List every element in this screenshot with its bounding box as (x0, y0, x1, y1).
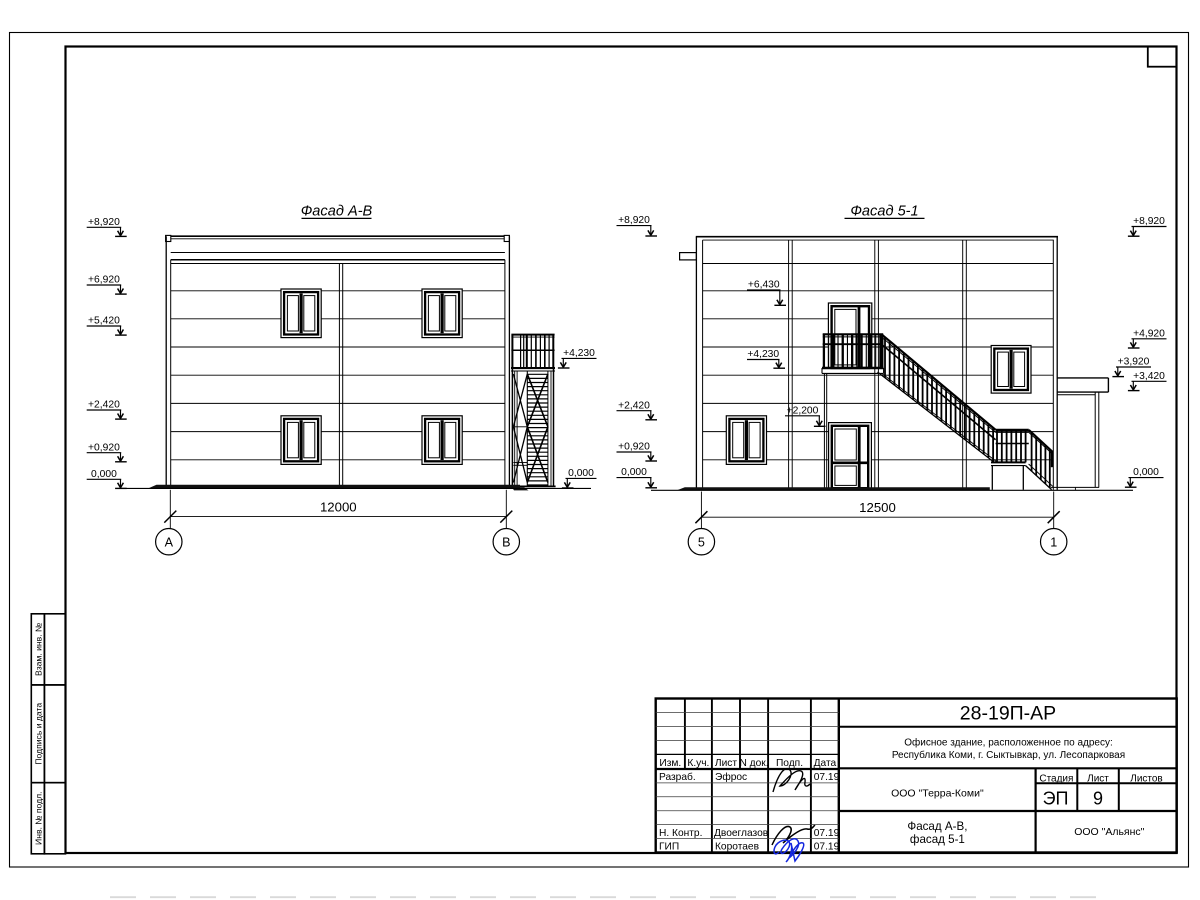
svg-text:ЭП: ЭП (1043, 788, 1069, 808)
svg-text:Фасад 5-1: Фасад 5-1 (850, 203, 918, 219)
svg-text:Фасад А-В: Фасад А-В (301, 203, 373, 219)
svg-text:Н. Контр.: Н. Контр. (659, 828, 702, 839)
svg-text:Стадия: Стадия (1039, 773, 1073, 784)
svg-text:+8,920: +8,920 (88, 217, 120, 228)
svg-text:+2,420: +2,420 (618, 400, 650, 411)
svg-text:28-19П-АР: 28-19П-АР (960, 703, 1056, 725)
svg-text:+0,920: +0,920 (618, 442, 650, 453)
svg-text:+3,420: +3,420 (1133, 371, 1165, 382)
svg-text:А: А (165, 535, 174, 549)
svg-text:07.19: 07.19 (814, 828, 840, 839)
svg-text:+6,430: +6,430 (748, 280, 780, 291)
svg-text:+8,920: +8,920 (1133, 216, 1165, 227)
svg-text:Изм.: Изм. (659, 758, 681, 769)
svg-text:Инв. № подл.: Инв. № подл. (34, 791, 44, 845)
svg-text:12000: 12000 (320, 500, 357, 515)
svg-text:07.19: 07.19 (814, 842, 840, 853)
svg-text:9: 9 (1093, 788, 1103, 808)
svg-text:Подпись и дата: Подпись и дата (34, 703, 44, 765)
svg-text:Лист: Лист (1087, 773, 1109, 784)
svg-text:+3,920: +3,920 (1118, 357, 1150, 368)
svg-text:+0,920: +0,920 (88, 442, 120, 453)
svg-text:ООО "Альянс": ООО "Альянс" (1074, 826, 1144, 838)
svg-text:N док.: N док. (739, 758, 768, 769)
svg-text:+4,920: +4,920 (1133, 328, 1165, 339)
svg-text:Разраб.: Разраб. (659, 771, 696, 783)
svg-text:В: В (502, 535, 510, 549)
svg-text:ООО "Терра-Коми": ООО "Терра-Коми" (891, 787, 984, 799)
svg-text:0,000: 0,000 (568, 468, 594, 479)
svg-text:Двоеглазов: Двоеглазов (714, 828, 768, 839)
svg-text:Республика Коми, г. Сыктывкар,: Республика Коми, г. Сыктывкар, ул. Лесоп… (892, 749, 1125, 761)
svg-text:+4,230: +4,230 (747, 349, 779, 360)
svg-text:0,000: 0,000 (91, 469, 117, 480)
svg-text:1: 1 (1050, 535, 1057, 549)
svg-text:Лист: Лист (715, 758, 737, 769)
svg-text:Офисное здание, расположенное: Офисное здание, расположенное по адресу: (904, 737, 1113, 749)
svg-text:+2,200: +2,200 (787, 405, 819, 416)
svg-text:Эфрос: Эфрос (715, 771, 747, 783)
svg-text:5: 5 (698, 535, 705, 549)
svg-text:фасад 5-1: фасад 5-1 (910, 833, 965, 846)
svg-text:К.уч.: К.уч. (687, 758, 709, 769)
svg-text:+5,420: +5,420 (88, 316, 120, 327)
svg-text:Коротаев: Коротаев (715, 842, 759, 853)
svg-text:+6,920: +6,920 (88, 275, 120, 286)
svg-text:Взам. инв. №: Взам. инв. № (34, 623, 44, 676)
svg-text:Фасад А-В,: Фасад А-В, (907, 820, 967, 833)
svg-text:Подп.: Подп. (776, 758, 803, 769)
svg-text:0,000: 0,000 (621, 467, 647, 478)
svg-text:Листов: Листов (1130, 773, 1163, 784)
svg-text:+4,230: +4,230 (563, 348, 595, 359)
svg-text:+8,920: +8,920 (618, 215, 650, 226)
svg-text:Дата: Дата (814, 758, 837, 769)
svg-text:07.19: 07.19 (814, 772, 840, 783)
svg-text:ГИП: ГИП (659, 842, 679, 853)
svg-text:+2,420: +2,420 (88, 400, 120, 411)
svg-text:12500: 12500 (859, 500, 896, 515)
svg-text:0,000: 0,000 (1133, 467, 1159, 478)
